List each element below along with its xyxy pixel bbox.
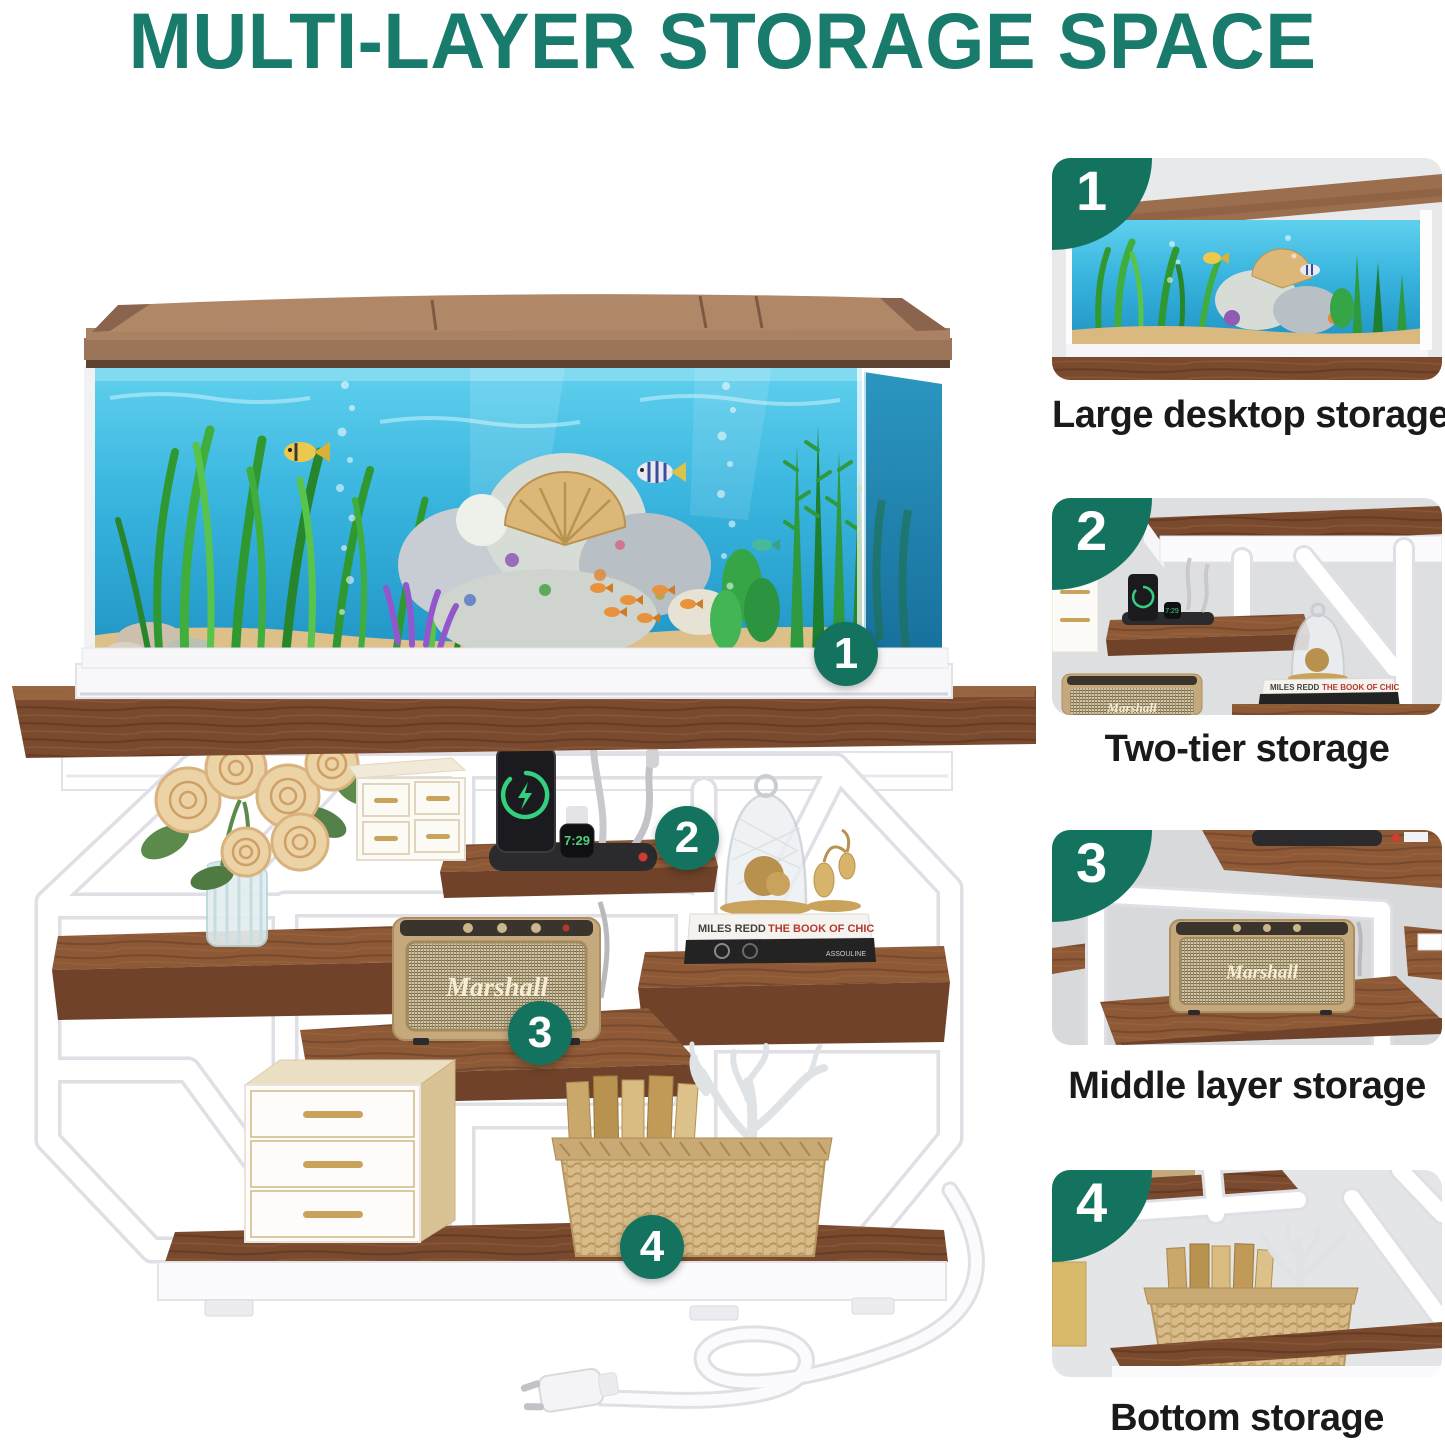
- thumbnail-middle-layer-storage: Marshall 3: [1052, 830, 1442, 1045]
- main-badge-2: 2: [655, 806, 719, 870]
- thumbnail-2-caption: Two-tier storage: [1052, 728, 1442, 771]
- thumb2-book-title: THE BOOK OF CHIC: [1322, 683, 1400, 692]
- thumb2-book-author: MILES REDD: [1270, 683, 1320, 692]
- aquarium-canopy: [84, 294, 952, 368]
- thumbnail-4-caption: Bottom storage: [1052, 1397, 1442, 1440]
- thumb2-marshall: Marshall: [1062, 674, 1202, 715]
- thumb3-speaker-brand: Marshall: [1225, 962, 1299, 983]
- main-badge-4: 4: [620, 1215, 684, 1279]
- thumbnail-1-caption: Large desktop storage: [1052, 394, 1442, 437]
- marshall-speaker: Marshall: [393, 902, 607, 1045]
- book-author-text: MILES REDD: [698, 923, 766, 935]
- main-badge-1: 1: [814, 622, 878, 686]
- decor-books: MILES REDD THE BOOK OF CHIC ASSOULINE: [684, 914, 876, 964]
- glass-cloche: [720, 776, 812, 916]
- tank-glass-edge-left: [84, 366, 95, 668]
- main-product-image: 7:29 MILES REDD THE BOOK OF CHIC ASSOULI…: [0, 0, 1045, 1442]
- watch-time-small: 7:29: [1165, 608, 1179, 615]
- speaker-brand-text: Marshall: [445, 972, 549, 1002]
- thumb3-marshall: Marshall: [1170, 920, 1354, 1015]
- drawer-cabinet: [245, 1060, 455, 1242]
- power-plug: [519, 1365, 620, 1416]
- thumb2-speaker-brand: Marshall: [1106, 700, 1157, 715]
- thumbnail-two-tier-storage: 7:29 MILES REDD THE BOOK OF CHIC Marshal…: [1052, 498, 1442, 715]
- main-badge-3: 3: [508, 1001, 572, 1065]
- aquarium: [82, 294, 952, 668]
- sidebar-thumbnails: 1 Large desktop storage 7:29: [1052, 0, 1442, 1442]
- infographic-page: { "title": "MULTI-LAYER STORAGE SPACE", …: [0, 0, 1445, 1442]
- power-indicator-light: [639, 853, 648, 862]
- thumbnail-3-caption: Middle layer storage: [1052, 1065, 1442, 1108]
- book-title-text: THE BOOK OF CHIC: [768, 923, 874, 935]
- thumbnail-bottom-storage: 4: [1052, 1170, 1442, 1377]
- storage-basket: [552, 1044, 832, 1256]
- watch-time: 7:29: [564, 833, 590, 848]
- thumbnail-large-desktop-storage: 1: [1052, 158, 1442, 380]
- book-publisher-text: ASSOULINE: [826, 951, 866, 958]
